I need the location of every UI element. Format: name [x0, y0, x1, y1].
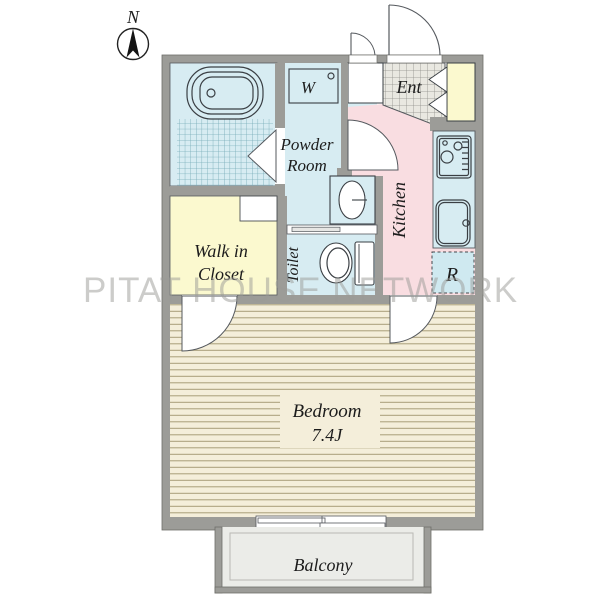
entrance-threshold [387, 55, 442, 63]
storage-door-gap [349, 55, 377, 63]
kitchen-counter [433, 131, 475, 248]
washer-label: W [301, 78, 317, 97]
kitchen-label: Kitchen [389, 182, 409, 239]
refrigerator-label: R [445, 264, 458, 286]
toilet-label: Toilet [285, 247, 302, 283]
powder-room-label-1: Powder [280, 135, 334, 154]
entrance-door-swing [389, 5, 440, 55]
entrance-label: Ent [396, 77, 423, 97]
balcony-label: Balcony [294, 555, 353, 575]
balcony: Balcony [215, 527, 431, 593]
walk-in-closet-label-1: Walk in [194, 241, 248, 261]
north-label: N [126, 7, 140, 27]
bedroom-label: Bedroom [293, 401, 362, 422]
bedroom-size-label: 7.4J [312, 425, 344, 445]
washer-box: W [289, 69, 338, 103]
storage-door-swing [351, 33, 375, 55]
floor-plan: N [0, 0, 600, 600]
storage-box [348, 63, 383, 103]
closet-column [240, 196, 277, 221]
refrigerator-space: R [432, 252, 474, 293]
north-indicator: N [118, 7, 149, 60]
powder-room-label-2: Room [286, 156, 327, 175]
walk-in-closet-label-2: Closet [198, 264, 245, 284]
toilet-sliding-door [287, 225, 377, 234]
floor-plan-page: N [0, 0, 600, 600]
